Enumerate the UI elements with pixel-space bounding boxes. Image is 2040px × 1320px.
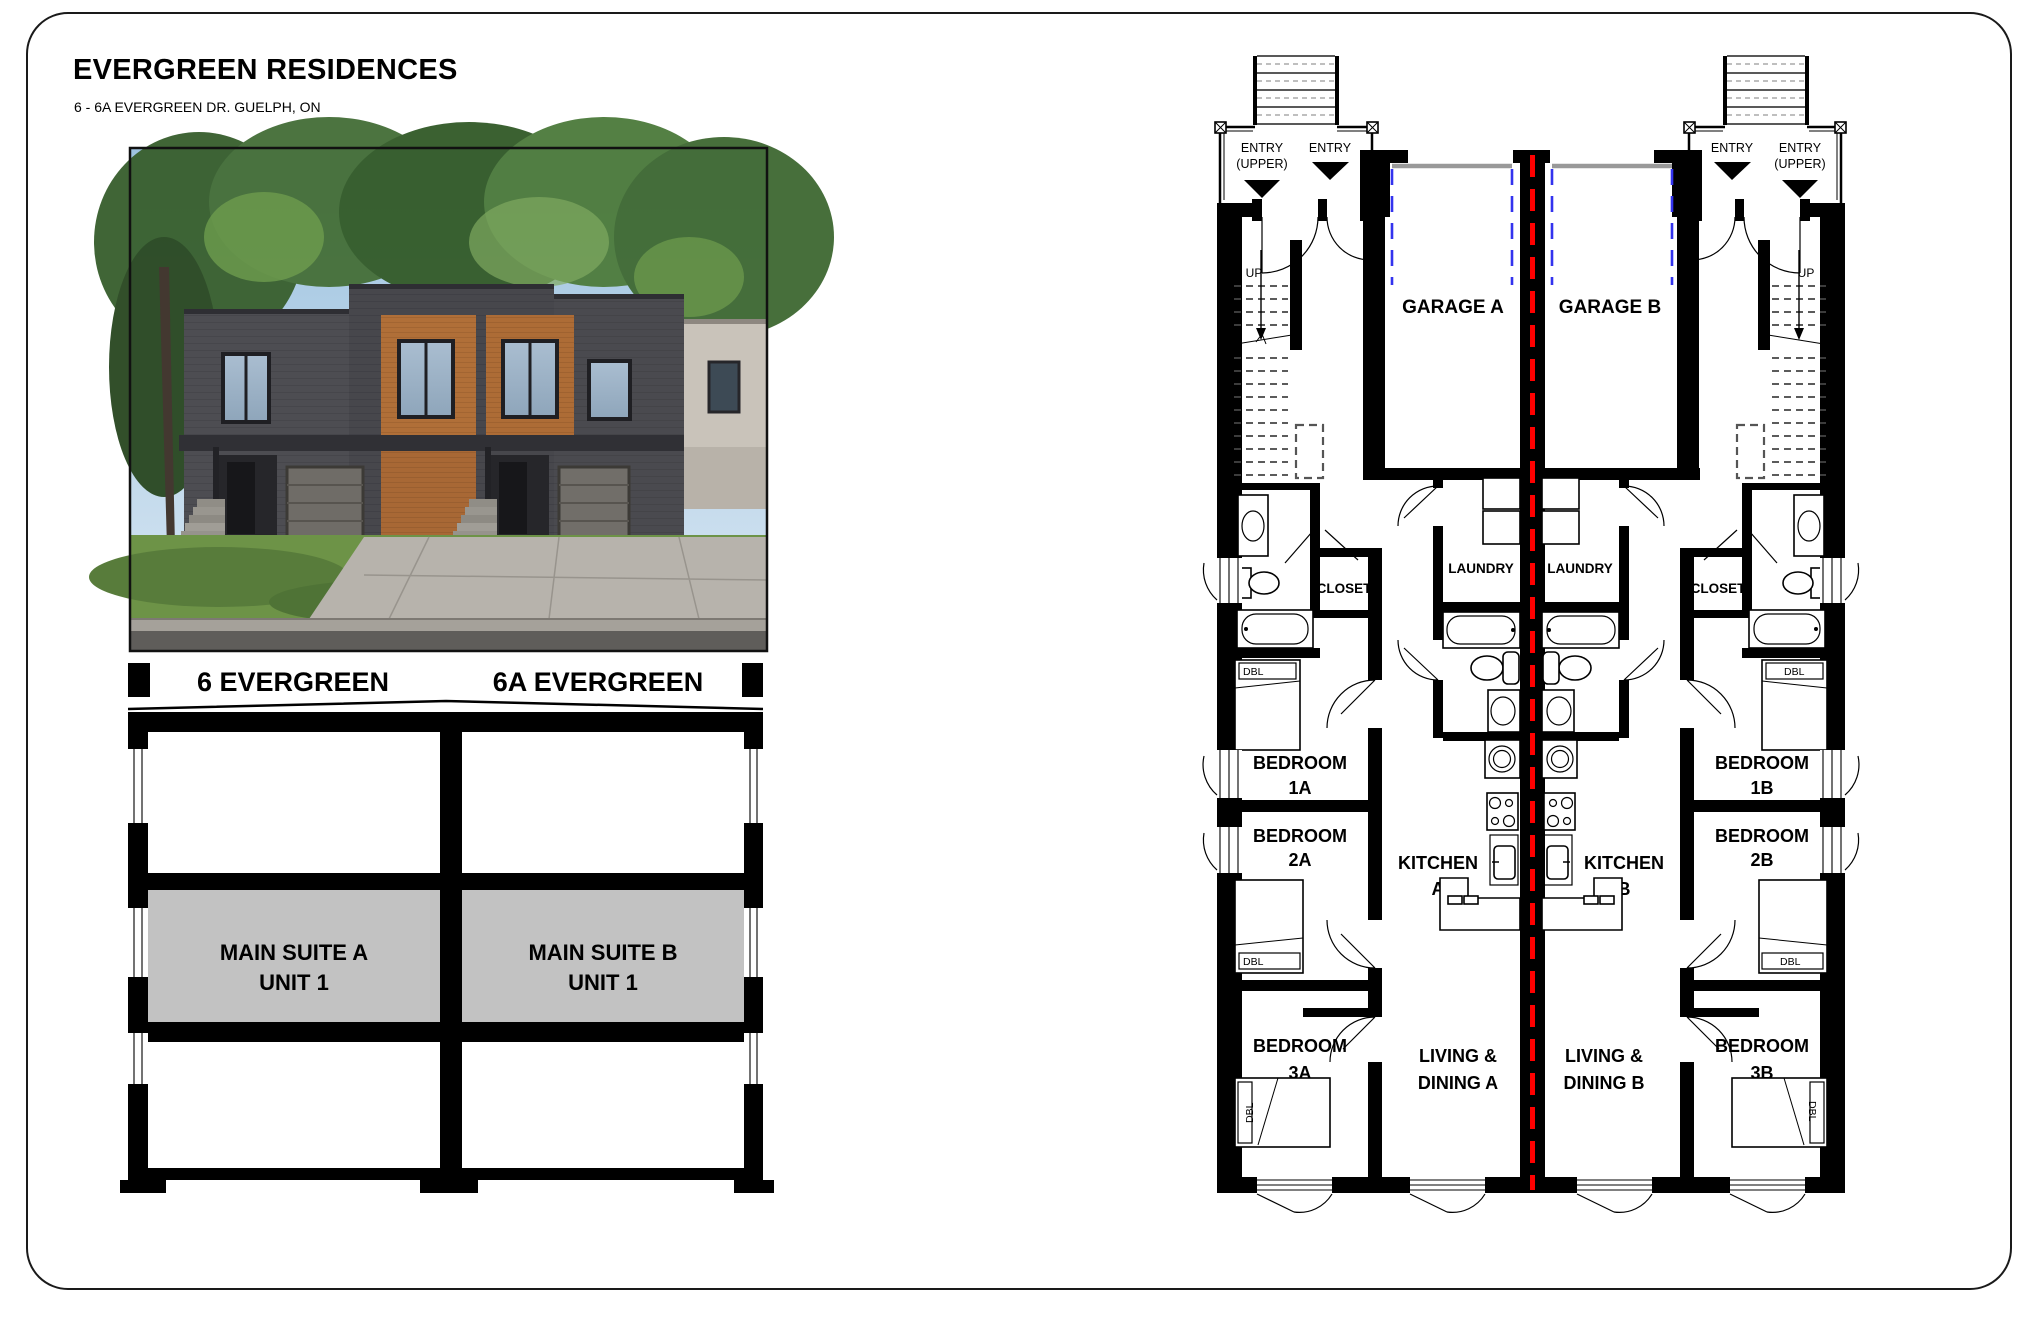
svg-text:DINING A: DINING A	[1418, 1073, 1498, 1093]
bathroom-b-fixtures	[1749, 495, 1825, 648]
section-suite-a: MAIN SUITE A UNIT 1	[148, 890, 440, 1022]
photo-ground	[89, 535, 768, 652]
entry-upper-b-arrow-icon	[1782, 180, 1818, 198]
svg-text:BEDROOM: BEDROOM	[1253, 753, 1347, 773]
interior-stair-a: UP	[1230, 250, 1323, 478]
entry-upper-b-suffix: (UPPER)	[1774, 157, 1825, 171]
floor-plan-diagram: ENTRY (UPPER) ENTRY ENTRY ENTRY (UPPER)	[1200, 40, 1860, 1240]
entry-b-label: ENTRY	[1711, 141, 1754, 155]
closet-b-label: CLOSET	[1691, 581, 1747, 596]
bedroom-1b-label: BEDROOM1B	[1715, 753, 1809, 798]
svg-text:BEDROOM: BEDROOM	[1715, 1036, 1809, 1056]
bedroom-3b-label: BEDROOM3B	[1715, 1036, 1809, 1083]
svg-text:BEDROOM: BEDROOM	[1715, 826, 1809, 846]
center-bath-b-fixtures	[1542, 612, 1619, 732]
svg-text:2A: 2A	[1288, 850, 1311, 870]
entry-labels-b: ENTRY ENTRY (UPPER)	[1711, 141, 1826, 198]
exterior-rendering-photo	[129, 147, 768, 652]
svg-text:LIVING &: LIVING &	[1419, 1046, 1497, 1066]
entry-labels-a: ENTRY (UPPER) ENTRY	[1236, 141, 1351, 198]
laundry-b-label: LAUNDRY	[1547, 561, 1613, 576]
svg-text:DBL: DBL	[1806, 1101, 1818, 1122]
living-dining-b-label: LIVING &DINING B	[1564, 1046, 1645, 1093]
svg-text:KITCHEN: KITCHEN	[1398, 853, 1478, 873]
interior-stair-b: UP	[1737, 250, 1830, 478]
bedroom-1a-label: BEDROOM1A	[1253, 753, 1347, 798]
exterior-stair-b	[1723, 56, 1809, 125]
suite-b-label: MAIN SUITE B	[528, 940, 677, 965]
center-bath-a-fixtures	[1443, 612, 1520, 732]
svg-text:DBL: DBL	[1243, 956, 1264, 968]
svg-text:BEDROOM: BEDROOM	[1253, 826, 1347, 846]
laundry-a-label: LAUNDRY	[1448, 561, 1514, 576]
bed-2b: DBL	[1759, 880, 1827, 973]
section-label-6-evergreen: 6 EVERGREEN	[197, 667, 389, 697]
entry-a-arrow-icon	[1312, 162, 1349, 180]
exterior-stair-a	[1253, 56, 1339, 125]
entry-upper-a-suffix: (UPPER)	[1236, 157, 1287, 171]
suite-a-unit-label: UNIT 1	[259, 970, 329, 995]
kitchen-a-fixtures	[1440, 740, 1520, 930]
living-dining-a-label: LIVING &DINING A	[1418, 1046, 1498, 1093]
page-title: EVERGREEN RESIDENCES	[73, 54, 458, 87]
page-subtitle: 6 - 6A EVERGREEN DR. GUELPH, ON	[74, 99, 321, 115]
entry-b-arrow-icon	[1714, 162, 1751, 180]
laundry-a-machines	[1483, 478, 1520, 544]
building-section-diagram: 6 EVERGREEN 6A EVERGREEN MAIN SUITE A UN…	[100, 655, 780, 1200]
svg-text:DINING B: DINING B	[1564, 1073, 1645, 1093]
bed-3b: DBL	[1732, 1078, 1827, 1147]
svg-text:DBL: DBL	[1243, 666, 1264, 678]
laundry-b-machines	[1542, 478, 1579, 544]
section-suite-b: MAIN SUITE B UNIT 1	[462, 890, 744, 1022]
bedroom-3a-label: BEDROOM3A	[1253, 1036, 1347, 1083]
bed-2a: DBL	[1235, 880, 1303, 973]
entry-upper-a-label: ENTRY	[1241, 141, 1284, 155]
bedroom-2b-label: BEDROOM2B	[1715, 826, 1809, 870]
entry-upper-b-label: ENTRY	[1779, 141, 1822, 155]
garage-a-label: GARAGE A	[1402, 297, 1504, 318]
kitchen-b-fixtures	[1542, 740, 1622, 930]
svg-text:KITCHEN: KITCHEN	[1584, 853, 1664, 873]
garage-b-label: GARAGE B	[1559, 297, 1661, 318]
bed-3a: DBL	[1235, 1078, 1330, 1147]
svg-text:LIVING &: LIVING &	[1565, 1046, 1643, 1066]
suite-a-label: MAIN SUITE A	[220, 940, 368, 965]
photo-building	[179, 284, 689, 539]
svg-text:DBL: DBL	[1780, 956, 1801, 968]
up-label-a: UP	[1246, 266, 1263, 280]
svg-text:1B: 1B	[1750, 778, 1773, 798]
bed-1b: DBL	[1762, 660, 1827, 750]
svg-text:DBL: DBL	[1784, 666, 1805, 678]
closet-a-label: CLOSET	[1317, 581, 1373, 596]
svg-text:BEDROOM: BEDROOM	[1715, 753, 1809, 773]
svg-text:1A: 1A	[1288, 778, 1311, 798]
bedroom-2a-label: BEDROOM2A	[1253, 826, 1347, 870]
bathroom-a-fixtures	[1237, 495, 1313, 648]
bed-1a: DBL	[1235, 660, 1300, 750]
svg-text:DBL: DBL	[1244, 1102, 1256, 1123]
svg-text:BEDROOM: BEDROOM	[1253, 1036, 1347, 1056]
entry-a-label: ENTRY	[1309, 141, 1352, 155]
svg-text:2B: 2B	[1750, 850, 1773, 870]
section-label-6a-evergreen: 6A EVERGREEN	[493, 667, 704, 697]
photo-neighbour-house	[684, 319, 768, 509]
entry-upper-a-arrow-icon	[1244, 180, 1280, 198]
suite-b-unit-label: UNIT 1	[568, 970, 638, 995]
